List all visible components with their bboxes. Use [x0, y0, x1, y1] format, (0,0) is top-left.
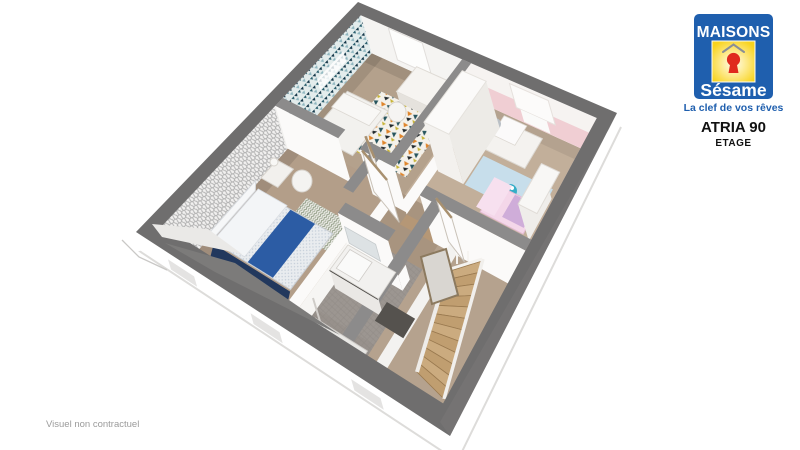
svg-text:Sésame: Sésame: [700, 80, 766, 100]
svg-text:Visuel non contractuel: Visuel non contractuel: [46, 419, 139, 430]
svg-text:ETAGE: ETAGE: [715, 138, 751, 149]
svg-text:La clef de vos rêves: La clef de vos rêves: [684, 102, 784, 114]
svg-text:ATRIA 90: ATRIA 90: [701, 119, 766, 136]
svg-text:MAISONS: MAISONS: [697, 24, 771, 41]
